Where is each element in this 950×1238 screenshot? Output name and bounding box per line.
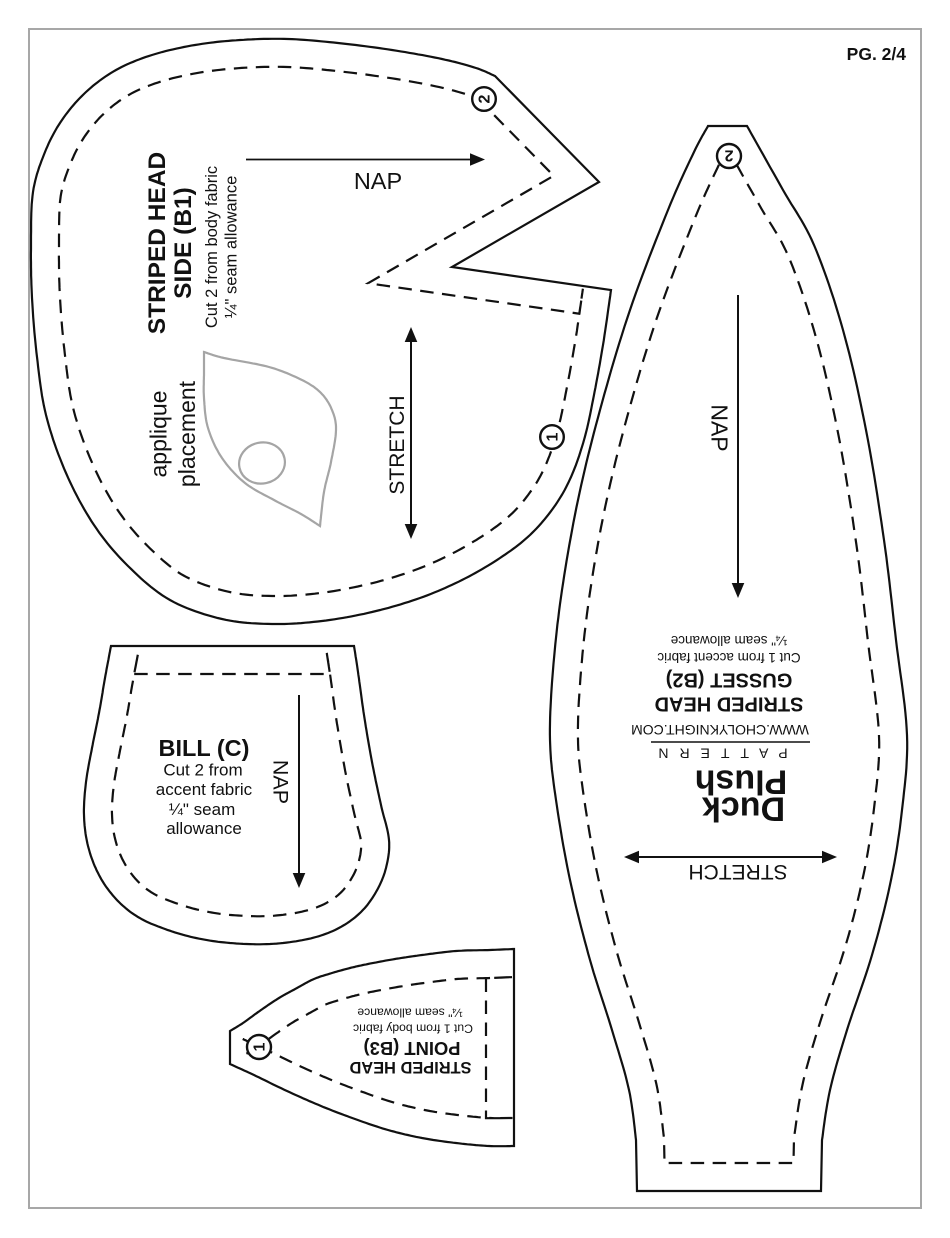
- svg-text:2: 2: [724, 146, 733, 163]
- svg-text:¼" seam: ¼" seam: [169, 800, 236, 819]
- svg-text:¼" seam allowance: ¼" seam allowance: [671, 633, 788, 648]
- svg-text:placement: placement: [174, 380, 200, 487]
- svg-text:Cut 2 from body fabric: Cut 2 from body fabric: [203, 166, 221, 328]
- svg-text:NAP: NAP: [707, 404, 733, 451]
- svg-text:Cut 1 from body fabric: Cut 1 from body fabric: [353, 1021, 473, 1035]
- svg-text:accent fabric: accent fabric: [156, 780, 253, 799]
- svg-text:PG. 2/4: PG. 2/4: [847, 44, 907, 64]
- svg-text:POINT (B3): POINT (B3): [363, 1038, 460, 1059]
- svg-text:STRETCH: STRETCH: [386, 395, 409, 494]
- svg-text:1: 1: [545, 432, 562, 441]
- svg-text:PATTERN: PATTERN: [647, 746, 787, 762]
- svg-text:BILL (C): BILL (C): [159, 735, 250, 761]
- svg-text:NAP: NAP: [354, 168, 402, 194]
- svg-text:Cut 1 from accent fabric: Cut 1 from accent fabric: [657, 650, 801, 665]
- svg-text:NAP: NAP: [269, 760, 293, 804]
- svg-text:allowance: allowance: [166, 819, 242, 838]
- svg-text:GUSSET (B2): GUSSET (B2): [666, 669, 793, 691]
- svg-text:SIDE (B1): SIDE (B1): [170, 187, 197, 299]
- svg-text:Duck: Duck: [702, 790, 785, 828]
- svg-text:STRIPED HEAD: STRIPED HEAD: [349, 1058, 471, 1076]
- svg-text:WWW.CHOLYKNIGHT.COM: WWW.CHOLYKNIGHT.COM: [631, 722, 809, 738]
- svg-text:STRIPED HEAD: STRIPED HEAD: [144, 152, 171, 334]
- svg-text:¼" seam allowance: ¼" seam allowance: [357, 1005, 462, 1019]
- svg-text:¼" seam allowance: ¼" seam allowance: [223, 176, 241, 319]
- svg-text:1: 1: [252, 1042, 269, 1051]
- svg-text:STRETCH: STRETCH: [688, 860, 787, 883]
- svg-text:applique: applique: [146, 391, 172, 478]
- svg-text:Cut 2 from: Cut 2 from: [163, 761, 242, 780]
- svg-text:STRIPED HEAD: STRIPED HEAD: [655, 693, 804, 715]
- svg-text:2: 2: [477, 94, 494, 103]
